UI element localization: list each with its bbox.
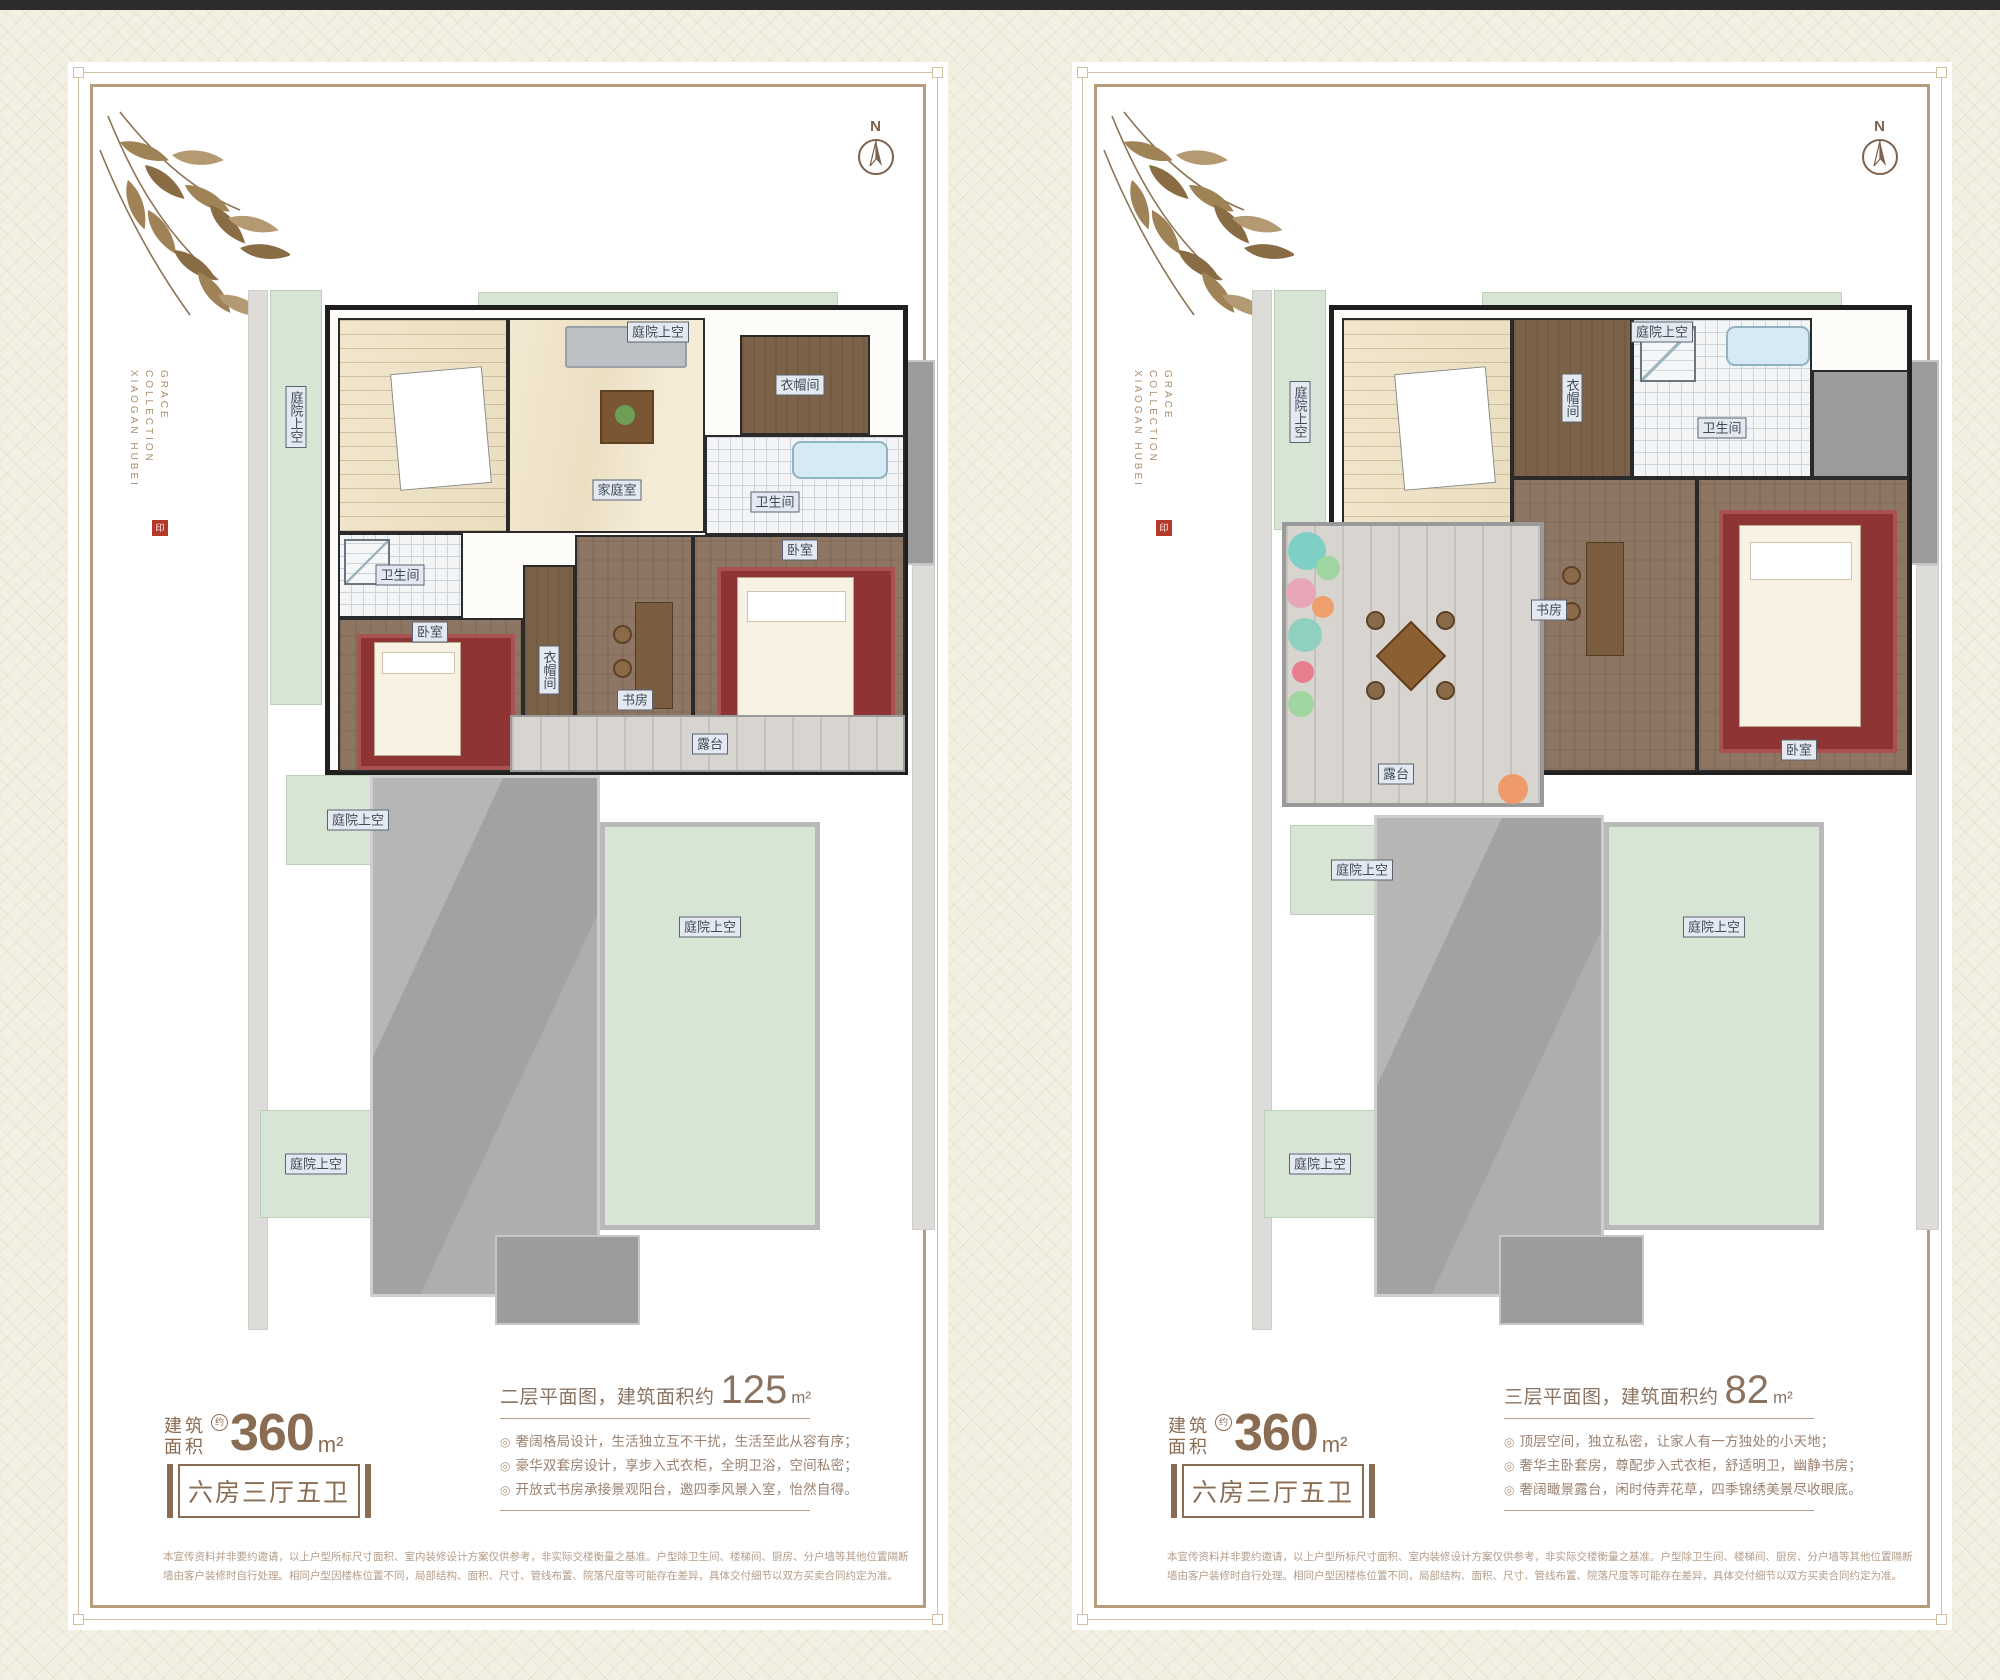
layout-box: 六房三厅五卫 <box>178 1464 360 1518</box>
closet-label: 衣帽间 <box>539 646 560 695</box>
feature-bullets: ◎ 奢阔格局设计，生活独立互不干扰，生活至此从容有序； ◎ 豪华双套房设计，享步… <box>500 1430 830 1502</box>
bathroom-label: 卫生间 <box>750 492 799 513</box>
entry-canopy <box>495 1235 640 1325</box>
roof-bottom <box>1374 815 1604 1297</box>
brand-line-1: GRACE COLLECTION <box>1145 370 1175 520</box>
courtyard-label: 庭院上空 <box>1683 917 1745 938</box>
brand-seal: 印 <box>152 520 168 536</box>
brand-line-1: GRACE COLLECTION <box>141 370 171 520</box>
courtyard-label: 庭院上空 <box>1289 1154 1351 1175</box>
chair <box>1562 566 1581 585</box>
floor-plan-3f: 庭院上空 庭院上空 庭院上空 庭院上空 庭院上空 衣帽间 卫生间 <box>1202 227 1942 1402</box>
closet-label: 衣帽间 <box>775 375 824 396</box>
staircase <box>1342 318 1512 533</box>
brand-vertical-text: GRACE COLLECTION XIAOGAN HUBEI <box>1130 370 1175 520</box>
poster-sheet: { "posters": [ { "brand_vertical": {"lin… <box>0 0 2000 1680</box>
chair <box>613 625 632 644</box>
courtyard-label: 庭院上空 <box>286 386 307 448</box>
floor-area-unit: m² <box>1773 1388 1793 1408</box>
frame-corner <box>932 67 943 78</box>
brand-seal: 印 <box>1156 520 1172 536</box>
chair <box>1366 611 1385 630</box>
entry-canopy <box>1499 1235 1644 1325</box>
plant <box>1288 618 1322 652</box>
bullet-item: ◎ 奢阔格局设计，生活独立互不干扰，生活至此从容有序； <box>500 1430 830 1450</box>
wall-band-right <box>912 565 935 1230</box>
bullet-marker-icon: ◎ <box>1504 1435 1514 1449</box>
brand-vertical-text: GRACE COLLECTION XIAOGAN HUBEI <box>126 370 171 520</box>
compass-icon <box>855 135 897 177</box>
plant <box>615 405 635 425</box>
divider <box>1504 1418 1814 1419</box>
feature-bullets: ◎ 顶层空间，独立私密，让家人有一方独处的小天地； ◎ 奢华主卧套房，尊配步入式… <box>1504 1430 1834 1502</box>
disclaimer: 本宣传资料并非要约邀请，以上户型所标尺寸面积、室内装修设计方案仅供参考，非实际交… <box>163 1548 887 1586</box>
layout-bar <box>1171 1464 1177 1518</box>
poster-card-floor2: GRACE COLLECTION XIAOGAN HUBEI 印 N 庭院上空 … <box>68 62 948 1630</box>
plant <box>1498 774 1528 804</box>
plant <box>1292 661 1314 683</box>
bullet-text: 奢阔瞰景露台，闲时侍弄花草，四季锦绣美景尽收眼底。 <box>1519 1478 1862 1498</box>
floor-title-prefix: 二层平面图，建筑面积约 <box>500 1382 715 1409</box>
courtyard-label: 庭院上空 <box>327 810 389 831</box>
terrace-table <box>1376 621 1447 692</box>
bed <box>1739 525 1861 727</box>
frame-corner <box>73 67 84 78</box>
layout-bar <box>167 1464 173 1518</box>
terrace-label: 露台 <box>1378 764 1414 785</box>
area-value: 360 <box>1234 1408 1318 1458</box>
bathtub <box>1726 326 1810 366</box>
plant <box>1312 596 1334 618</box>
chair <box>1436 681 1455 700</box>
compass-icon <box>1859 135 1901 177</box>
disclaimer-line2: 墙由客户装修时自行处理。相同户型因楼栋位置不同，局部结构、面积、尺寸、管线布置、… <box>163 1567 887 1586</box>
north-label: N <box>850 118 902 135</box>
bullet-item: ◎ 奢阔瞰景露台，闲时侍弄花草，四季锦绣美景尽收眼底。 <box>1504 1478 1834 1498</box>
courtyard-label: 庭院上空 <box>627 322 689 343</box>
layout-box: 六房三厅五卫 <box>1182 1464 1364 1518</box>
bullet-item: ◎ 豪华双套房设计，享步入式衣柜，全明卫浴，空间私密； <box>500 1454 830 1474</box>
area-label-line1: 建筑 <box>164 1416 206 1437</box>
frame-corner <box>932 1614 943 1625</box>
courtyard-label: 庭院上空 <box>285 1154 347 1175</box>
floor-title: 二层平面图，建筑面积约 125 m² <box>500 1368 830 1413</box>
stair-panel <box>390 366 492 491</box>
brand-line-2: XIAOGAN HUBEI <box>126 370 141 520</box>
frame-corner <box>73 1614 84 1625</box>
approx-circle: 约 <box>1215 1414 1232 1431</box>
layout-box-row: 六房三厅五卫 <box>167 1464 371 1518</box>
floor-area-unit: m² <box>791 1388 811 1408</box>
roof-bottom <box>370 775 600 1297</box>
top-dark-strip <box>0 0 2000 10</box>
family-room-label: 家庭室 <box>592 480 641 501</box>
divider <box>500 1510 810 1511</box>
courtyard-label: 庭院上空 <box>1331 860 1393 881</box>
frame-corner <box>1936 1614 1947 1625</box>
divider <box>500 1418 810 1419</box>
bullet-text: 奢华主卧套房，尊配步入式衣柜，舒适明卫，幽静书房； <box>1519 1454 1862 1474</box>
stair-panel <box>1394 366 1496 491</box>
brand-line-2: XIAOGAN HUBEI <box>1130 370 1145 520</box>
bullet-marker-icon: ◎ <box>1504 1459 1514 1473</box>
bullet-marker-icon: ◎ <box>500 1459 510 1473</box>
bullet-marker-icon: ◎ <box>1504 1483 1514 1497</box>
family-room <box>508 318 705 533</box>
courtyard-label: 庭院上空 <box>1290 381 1311 443</box>
area-badge: 建筑 面积 约 360 m² <box>164 1408 343 1458</box>
terrace: 露台 <box>1282 522 1544 807</box>
courtyard-big <box>1604 822 1824 1230</box>
bullet-text: 奢阔格局设计，生活独立互不干扰，生活至此从容有序； <box>515 1430 858 1450</box>
area-unit: m² <box>318 1432 344 1458</box>
bathtub <box>792 441 888 479</box>
plant <box>1316 556 1340 580</box>
courtyard-label: 庭院上空 <box>1631 322 1693 343</box>
area-badge: 建筑 面积 约 360 m² <box>1168 1408 1347 1458</box>
study-label: 书房 <box>1531 600 1567 621</box>
desk <box>1586 542 1624 656</box>
bedroom-label: 卧室 <box>782 540 818 561</box>
disclaimer-line1: 本宣传资料并非要约邀请，以上户型所标尺寸面积、室内装修设计方案仅供参考，非实际交… <box>1167 1548 1891 1567</box>
chair <box>613 659 632 678</box>
approx-circle: 约 <box>211 1414 228 1431</box>
wall-band-right <box>1916 565 1939 1230</box>
courtyard-big <box>600 822 820 1230</box>
area-label-line1: 建筑 <box>1168 1416 1210 1437</box>
compass: N <box>850 118 902 182</box>
area-label-line2: 面积 <box>164 1437 206 1458</box>
bullet-text: 豪华双套房设计，享步入式衣柜，全明卫浴，空间私密； <box>515 1454 858 1474</box>
bullet-item: ◎ 开放式书房承接景观阳台，邀四季风景入室，怡然自得。 <box>500 1478 830 1498</box>
divider <box>1504 1510 1814 1511</box>
bathroom-right <box>705 435 905 535</box>
bullet-item: ◎ 顶层空间，独立私密，让家人有一方独处的小天地； <box>1504 1430 1834 1450</box>
study-label: 书房 <box>617 690 653 711</box>
floor-title-prefix: 三层平面图，建筑面积约 <box>1504 1382 1719 1409</box>
bathroom-label: 卫生间 <box>1697 418 1746 439</box>
floor-plan-2f: 庭院上空 庭院上空 庭院上空 庭院上空 庭院上空 家庭室 衣帽间 <box>198 227 938 1402</box>
plant <box>1288 691 1314 717</box>
chair <box>1366 681 1385 700</box>
floor-title: 三层平面图，建筑面积约 82 m² <box>1504 1368 1834 1413</box>
disclaimer: 本宣传资料并非要约邀请，以上户型所标尺寸面积、室内装修设计方案仅供参考，非实际交… <box>1167 1548 1891 1586</box>
layout-bar <box>365 1464 371 1518</box>
roof-inset <box>1812 370 1909 478</box>
bullet-item: ◎ 奢华主卧套房，尊配步入式衣柜，舒适明卫，幽静书房； <box>1504 1454 1834 1474</box>
staircase <box>338 318 508 533</box>
bathroom-label: 卫生间 <box>375 565 424 586</box>
frame-corner <box>1077 1614 1088 1625</box>
courtyard-left <box>270 290 322 705</box>
layout-box-row: 六房三厅五卫 <box>1171 1464 1375 1518</box>
chair <box>1436 611 1455 630</box>
bullet-text: 顶层空间，独立私密，让家人有一方独处的小天地； <box>1519 1430 1834 1450</box>
bullet-text: 开放式书房承接景观阳台，邀四季风景入室，怡然自得。 <box>515 1478 858 1498</box>
bedroom-label: 卧室 <box>1781 740 1817 761</box>
disclaimer-line2: 墙由客户装修时自行处理。相同户型因楼栋位置不同，局部结构、面积、尺寸、管线布置、… <box>1167 1567 1891 1586</box>
area-label-line2: 面积 <box>1168 1437 1210 1458</box>
area-label: 建筑 面积 <box>1168 1416 1210 1458</box>
poster-card-floor3: GRACE COLLECTION XIAOGAN HUBEI 印 N 庭院上空 … <box>1072 62 1952 1630</box>
bed <box>374 642 461 756</box>
closet-label: 衣帽间 <box>1562 374 1583 423</box>
bedroom <box>1697 478 1909 772</box>
area-label: 建筑 面积 <box>164 1416 206 1458</box>
disclaimer-line1: 本宣传资料并非要约邀请，以上户型所标尺寸面积、室内装修设计方案仅供参考，非实际交… <box>163 1548 887 1567</box>
frame-corner <box>1936 67 1947 78</box>
bedroom-label: 卧室 <box>412 622 448 643</box>
frame-corner <box>1077 67 1088 78</box>
area-value: 360 <box>230 1408 314 1458</box>
terrace-label: 露台 <box>692 734 728 755</box>
courtyard-label: 庭院上空 <box>679 917 741 938</box>
compass: N <box>1854 118 1906 182</box>
bullet-marker-icon: ◎ <box>500 1483 510 1497</box>
north-label: N <box>1854 118 1906 135</box>
bullet-marker-icon: ◎ <box>500 1435 510 1449</box>
floor-area-value: 82 <box>1725 1368 1770 1413</box>
building-2f: 家庭室 衣帽间 卫生间 卧室 书房 衣帽间 卫生间 <box>325 305 908 775</box>
area-unit: m² <box>1322 1432 1348 1458</box>
layout-bar <box>1369 1464 1375 1518</box>
floor-area-value: 125 <box>721 1368 788 1413</box>
